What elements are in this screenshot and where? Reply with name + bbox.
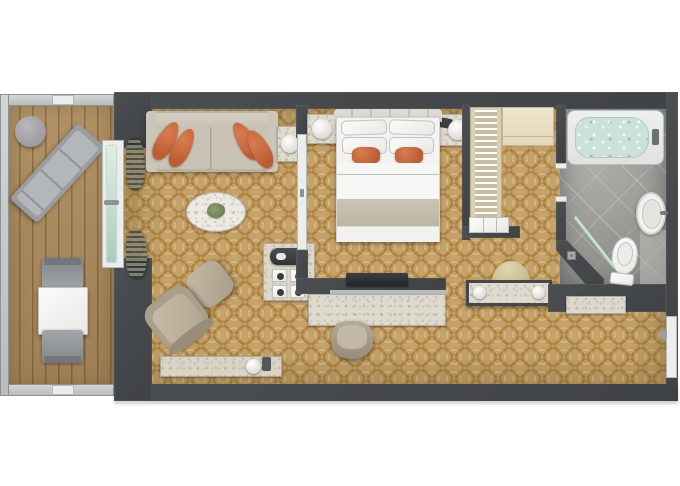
balcony-railing-left [0,94,9,396]
wall-bottom [114,384,678,401]
bed-pillow-orange [352,147,380,164]
railing-post [52,95,74,105]
washbasin [636,192,666,235]
desk [308,294,446,326]
desk-chair [331,321,373,359]
floor-plan [0,0,680,486]
glass-door-handle [104,200,119,205]
wall-top [114,92,678,109]
wall-left-lower [114,258,152,401]
bed [336,117,440,242]
hall-console [566,296,626,314]
closet-cabinet [502,107,554,146]
curtain-bottom [126,230,147,278]
toilet [605,235,643,289]
curtain-top [126,138,145,190]
bath-wall-left-upper [556,105,566,164]
bedroom-sliding-door [297,134,307,250]
patio-chair-bottom [42,330,83,363]
entry-door-handle [660,330,667,339]
basin-counter [640,230,666,284]
railing-post [52,385,74,395]
bedside-lamp-left [312,119,332,139]
bed-pillow-orange [395,147,423,164]
duvet [337,163,439,199]
bath-door-post [555,163,567,169]
vanity-table [466,280,552,306]
closet-drawers [469,217,509,233]
tv [346,273,408,286]
bathtub [567,110,664,165]
patio-table [38,287,88,335]
tub-faucet [652,129,659,145]
bed-runner [337,199,439,226]
balcony-round-table [15,116,46,147]
bath-wall-left-lower [556,202,566,244]
bench-tray [262,357,271,371]
entry-door [666,316,677,378]
bench-ice-bucket [246,359,261,374]
wardrobe [470,107,502,226]
floor-drain [567,251,576,260]
bed-foot-sheet [337,226,439,242]
